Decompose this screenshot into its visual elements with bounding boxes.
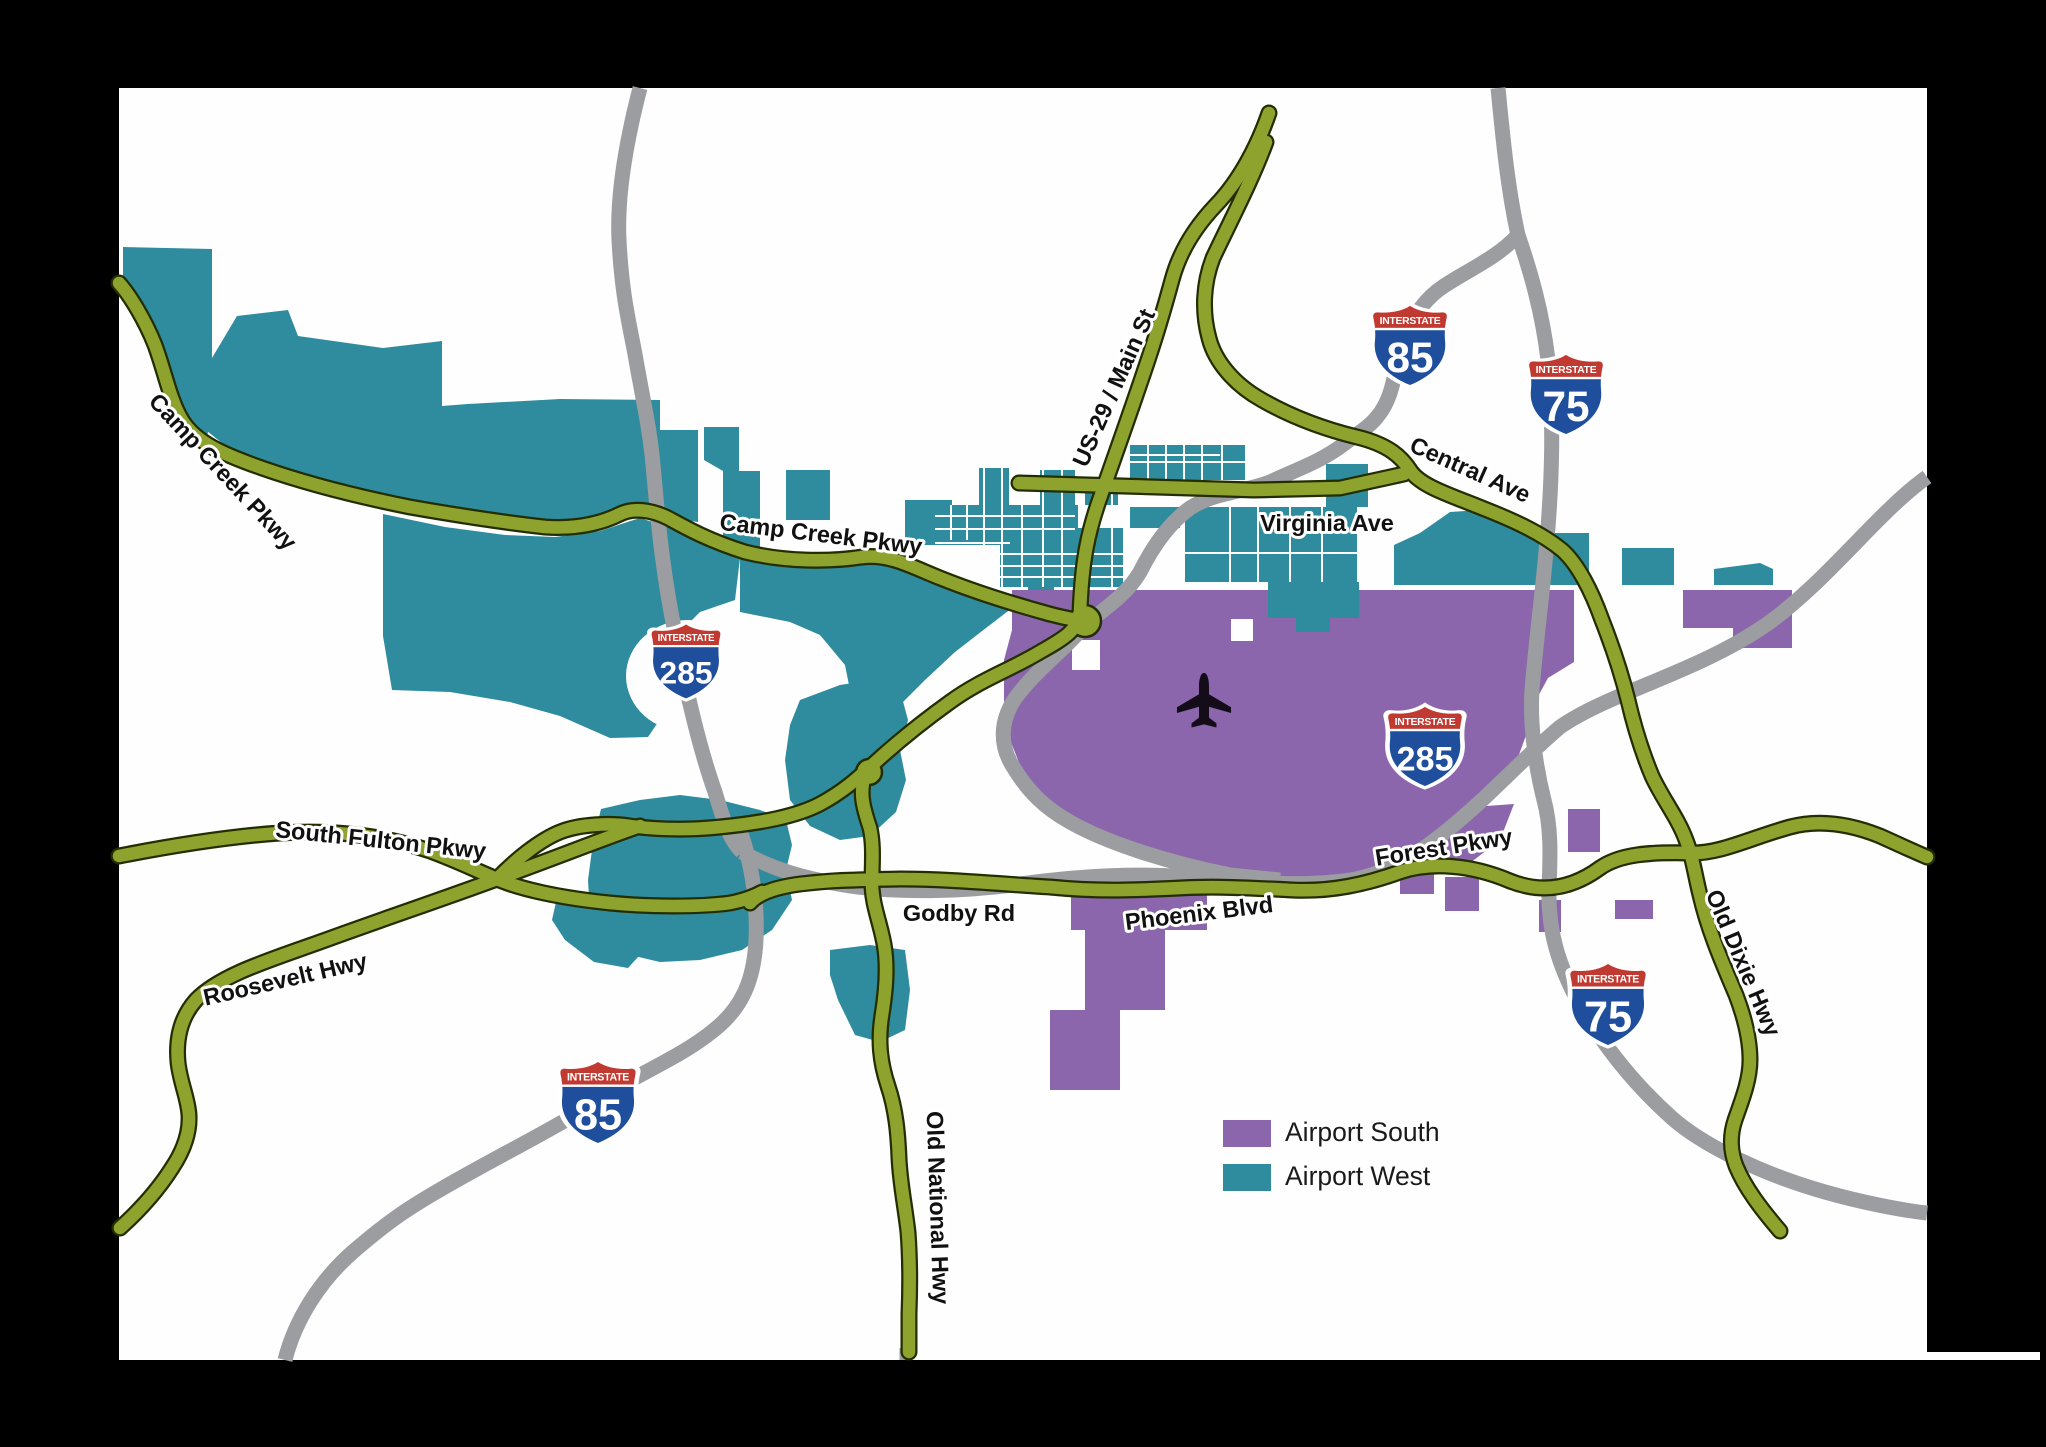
svg-text:Airport South: Airport South bbox=[1285, 1117, 1440, 1147]
svg-text:85: 85 bbox=[1386, 334, 1433, 381]
svg-text:75: 75 bbox=[1542, 383, 1589, 430]
svg-text:85: 85 bbox=[574, 1092, 622, 1140]
svg-text:285: 285 bbox=[659, 655, 712, 691]
svg-text:Godby Rd: Godby Rd bbox=[903, 900, 1015, 926]
svg-text:Airport West: Airport West bbox=[1285, 1161, 1431, 1191]
svg-text:285: 285 bbox=[1396, 740, 1453, 778]
svg-text:75: 75 bbox=[1584, 994, 1632, 1042]
svg-text:Virginia Ave: Virginia Ave bbox=[1260, 510, 1394, 536]
